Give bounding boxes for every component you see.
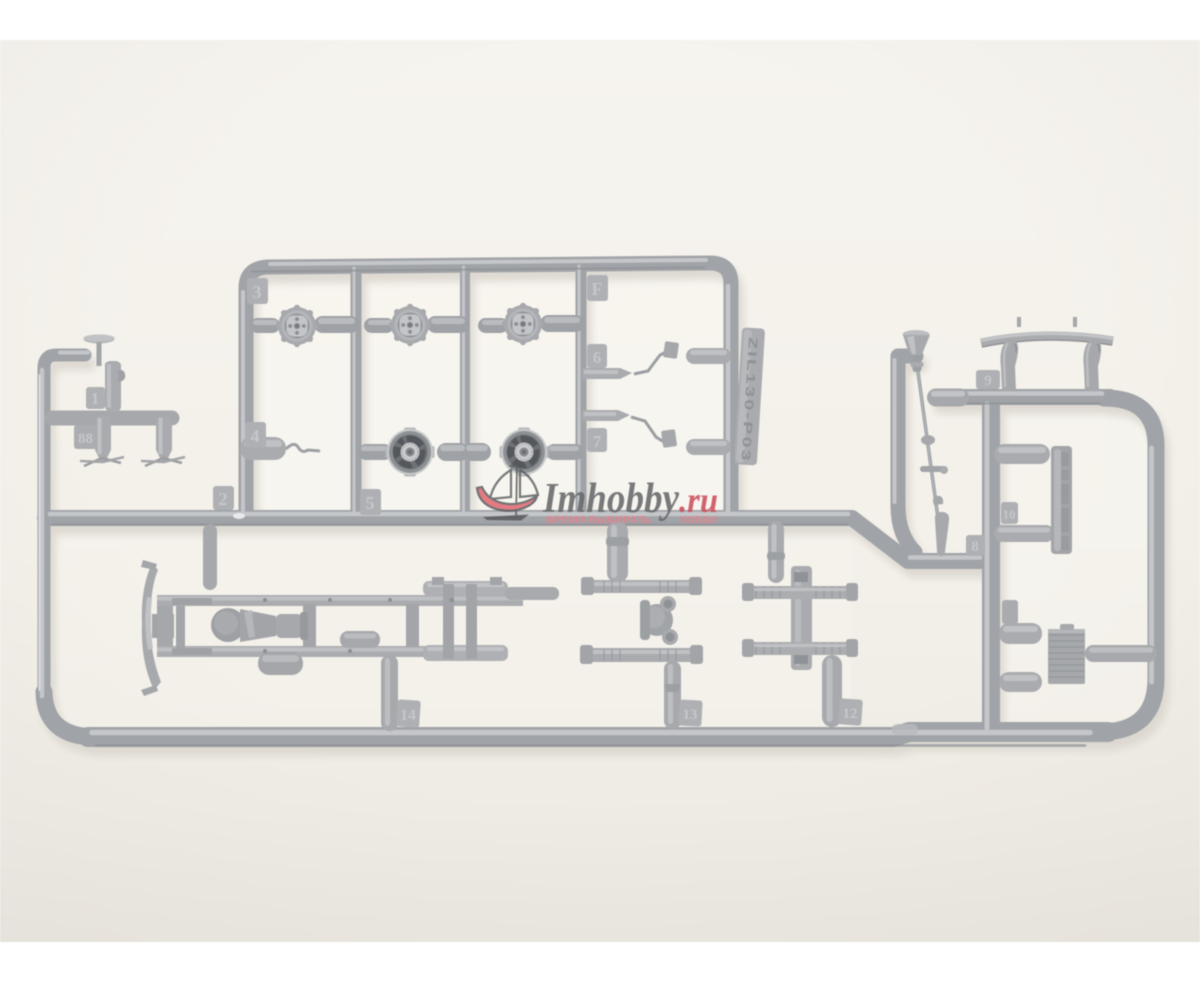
svg-text:9: 9	[984, 373, 992, 389]
svg-text:.ru: .ru	[679, 480, 718, 520]
svg-text:7: 7	[593, 432, 602, 451]
svg-text:14: 14	[400, 707, 416, 724]
svg-text:ХОББИ: ХОББИ	[680, 515, 717, 526]
svg-text:1: 1	[91, 389, 100, 408]
svg-text:8: 8	[971, 539, 979, 555]
svg-text:F: F	[592, 279, 603, 299]
svg-text:ВРЕМЯ ВЫБИРАТЬ: ВРЕМЯ ВЫБИРАТЬ	[546, 515, 651, 526]
svg-text:6: 6	[593, 348, 602, 367]
svg-text:4: 4	[251, 426, 260, 446]
svg-text:3: 3	[253, 282, 262, 302]
svg-text:13: 13	[683, 707, 698, 723]
svg-text:5: 5	[366, 493, 375, 513]
svg-text:88: 88	[78, 431, 93, 447]
svg-text:2: 2	[219, 489, 228, 509]
svg-text:10: 10	[1003, 507, 1016, 522]
svg-text:12: 12	[843, 706, 858, 722]
